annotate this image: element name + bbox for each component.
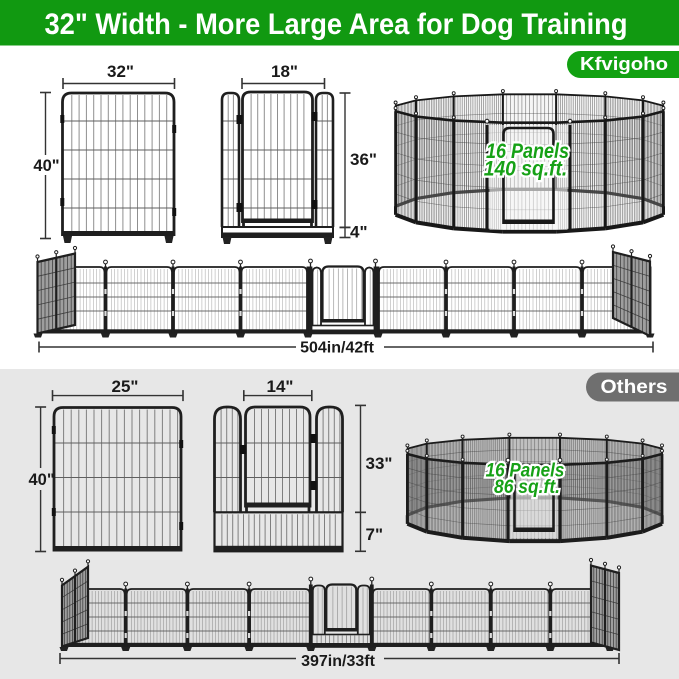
svg-text:397in/33ft: 397in/33ft xyxy=(301,653,375,670)
svg-text:18": 18" xyxy=(271,62,298,81)
svg-text:Kfvigoho: Kfvigoho xyxy=(580,53,668,74)
svg-text:32" Width - More Large Area fo: 32" Width - More Large Area for Dog Trai… xyxy=(45,8,628,41)
svg-text:33": 33" xyxy=(366,454,393,473)
svg-text:14": 14" xyxy=(267,377,294,396)
svg-text:86 sq.ft.: 86 sq.ft. xyxy=(494,476,560,498)
svg-text:Others: Others xyxy=(601,377,668,398)
svg-text:7": 7" xyxy=(366,525,384,544)
svg-text:4": 4" xyxy=(350,223,368,242)
svg-text:32": 32" xyxy=(107,62,134,81)
svg-text:504in/42ft: 504in/42ft xyxy=(300,340,374,357)
svg-text:25": 25" xyxy=(112,377,139,396)
svg-text:40": 40" xyxy=(29,471,55,489)
svg-text:36": 36" xyxy=(350,150,377,169)
svg-text:140 sq.ft.: 140 sq.ft. xyxy=(484,158,568,181)
svg-text:40": 40" xyxy=(33,157,59,175)
